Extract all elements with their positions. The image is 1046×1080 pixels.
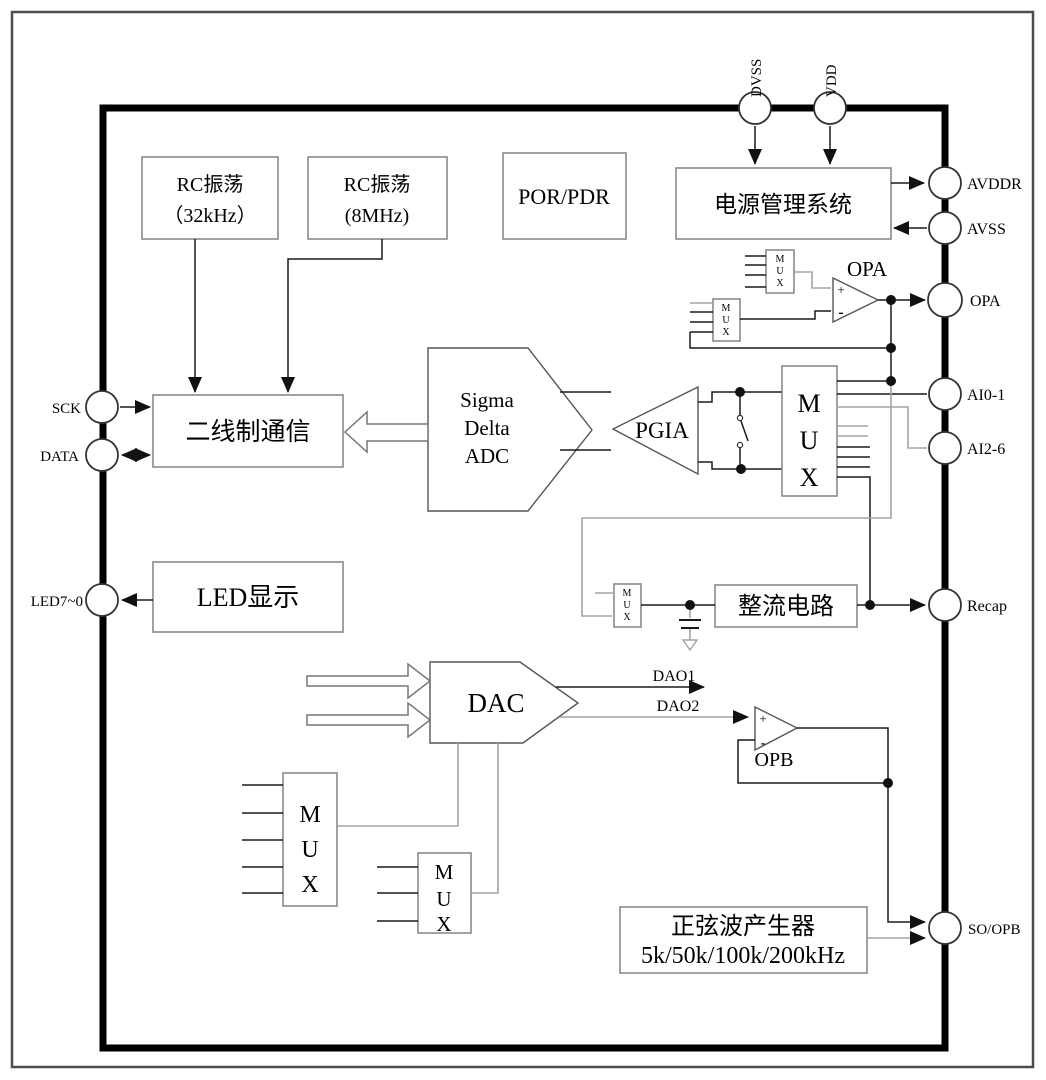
pin-label-recap: Recap	[967, 598, 1007, 615]
opa-pos-mux-block: M U X	[745, 250, 794, 293]
pin-label-vdd: VDD	[824, 64, 840, 97]
pin-circle-avss	[929, 212, 961, 244]
pin-circle-opa	[928, 283, 962, 317]
opb-amplifier: + - OPB	[755, 707, 797, 771]
mux-letter-u: U	[800, 426, 819, 455]
filter-capacitor	[679, 609, 701, 650]
opb-output-wire	[797, 728, 888, 783]
pin-label-opa: OPA	[970, 293, 1001, 310]
pin-ai0-1: AI0-1	[929, 378, 1005, 410]
mux-letter-u: U	[623, 600, 631, 611]
mux-letter-m: M	[797, 389, 820, 418]
pin-avddr: AVDDR	[929, 167, 1022, 199]
rc8-label-line2: (8MHz)	[345, 205, 409, 227]
rc8-oscillator-block: RC振荡 (8MHz)	[308, 157, 447, 239]
adc-shape	[428, 348, 592, 511]
rc32-oscillator-block: RC振荡 （32kHz）	[142, 157, 278, 239]
pgia-label: PGIA	[635, 418, 689, 443]
mux-letter-u: U	[722, 315, 730, 326]
pin-circle-led7-0	[86, 584, 118, 616]
opa-minus-sign: -	[838, 304, 843, 321]
junction-dot	[886, 295, 896, 305]
pin-label-data: DATA	[40, 449, 79, 465]
adc-label-line1: Sigma	[460, 388, 514, 412]
junction-dots	[685, 295, 896, 788]
mux-letter-m: M	[299, 802, 320, 828]
ground-symbol	[683, 640, 697, 650]
rc8-label-line1: RC振荡	[344, 173, 411, 196]
rc8-to-twowire-wire	[288, 239, 382, 392]
opa-neg-mux-inputs	[690, 312, 713, 332]
two-wire-label: 二线制通信	[185, 418, 310, 446]
junction-dot	[685, 600, 695, 610]
pin-label-avddr: AVDDR	[967, 176, 1022, 193]
capacitor-plates	[679, 620, 701, 628]
por-pdr-label: POR/PDR	[518, 184, 610, 209]
dac-aux-mux-inputs	[377, 867, 418, 921]
opa-neg-mux-block: M U X	[690, 299, 740, 341]
pin-label-sck: SCK	[52, 401, 81, 417]
pin-label-ai2-6: AI2-6	[967, 441, 1005, 458]
pin-circle-data	[86, 439, 118, 471]
opa-neg-input-wire	[740, 311, 831, 319]
sine-generator-label-line1: 正弦波产生器	[671, 913, 815, 940]
mux-letter-x: X	[800, 463, 819, 492]
mux-letter-m: M	[722, 303, 731, 314]
chip-block-diagram: RC振荡 （32kHz） RC振荡 (8MHz) POR/PDR 电源管理系统 …	[0, 0, 1046, 1080]
mux-letter-u: U	[776, 266, 784, 277]
outer-frame	[12, 12, 1033, 1067]
pin-led7-0: LED7~0	[31, 584, 118, 616]
rectifier-label: 整流电路	[738, 593, 834, 620]
pin-circle-so-opb	[929, 912, 961, 944]
input-mux-wires-dark	[837, 381, 927, 467]
opa-feedback-wrap-wire	[690, 332, 891, 348]
opa-plus-sign: +	[837, 282, 844, 297]
pin-vdd: VDD	[814, 64, 846, 124]
por-pdr-block: POR/PDR	[503, 153, 626, 239]
dac-block: DAC	[430, 662, 578, 743]
dac-input-arrow-1	[307, 664, 430, 698]
analog-input-mux-block: M U X	[782, 366, 837, 496]
dao2-label: DAO2	[657, 698, 700, 715]
junction-dot	[865, 600, 875, 610]
dao1-label: DAO1	[653, 668, 696, 685]
dac-aux-mux-block: M U X	[377, 853, 471, 936]
mux-letter-m: M	[776, 254, 785, 265]
sine-generator-label-line2: 5k/50k/100k/200kHz	[641, 943, 845, 969]
mux-letter-x: X	[623, 612, 631, 623]
dac-label: DAC	[467, 688, 524, 718]
diagram-canvas: RC振荡 （32kHz） RC振荡 (8MHz) POR/PDR 电源管理系统 …	[0, 0, 1046, 1080]
pin-avss: AVSS	[929, 212, 1006, 244]
mux-letter-x: X	[436, 912, 451, 936]
input-mux-stub-wires	[837, 426, 868, 436]
opa-amp-label: OPA	[847, 257, 888, 281]
rectifier-block: 整流电路	[715, 585, 857, 627]
pin-label-so-opb: SO/OPB	[968, 922, 1021, 938]
switch-contact-bottom	[737, 442, 742, 447]
pin-circle-sck	[86, 391, 118, 423]
adc-to-twowire-arrow	[345, 412, 428, 452]
two-wire-block: 二线制通信	[153, 395, 343, 467]
opa-amplifier: + - OPA	[833, 257, 888, 322]
pin-sck: SCK	[52, 391, 118, 423]
opb-amp-label: OPB	[755, 749, 794, 771]
opa-pos-input-wire	[794, 272, 831, 288]
mux-letter-m: M	[623, 588, 632, 599]
junction-dot	[735, 387, 745, 397]
adc-label-line2: Delta	[464, 416, 510, 440]
power-mgmt-label: 电源管理系统	[714, 192, 852, 217]
dac-input-arrow-2	[307, 703, 430, 737]
pin-so-opb: SO/OPB	[929, 912, 1021, 944]
pin-recap: Recap	[929, 589, 1007, 621]
adc-label-line3: ADC	[465, 444, 509, 468]
sine-generator-block: 正弦波产生器 5k/50k/100k/200kHz	[620, 907, 867, 973]
pgia-block: PGIA	[613, 387, 698, 474]
mux-letter-u: U	[436, 887, 451, 911]
rc32-label-line2: （32kHz）	[163, 204, 256, 227]
pin-circle-ai2-6	[929, 432, 961, 464]
analog-switch-lines	[740, 396, 748, 464]
led-display-block: LED显示	[153, 562, 343, 632]
pin-circle-avddr	[929, 167, 961, 199]
pin-dvss: DVSS	[739, 59, 771, 124]
opa-pos-mux-inputs	[745, 256, 766, 287]
node-to-rectifier-mux-wire	[582, 381, 891, 616]
pin-data: DATA	[40, 439, 118, 471]
dac-source-mux-inputs	[242, 785, 283, 893]
power-mgmt-block: 电源管理系统	[676, 168, 891, 239]
pin-label-dvss: DVSS	[749, 59, 765, 97]
rectifier-mux-block: M U X	[595, 584, 641, 627]
pin-ai2-6: AI2-6	[929, 432, 1005, 464]
opb-to-pin-wire	[888, 783, 925, 922]
mux-letter-x: X	[776, 278, 784, 289]
led-display-label: LED显示	[197, 583, 300, 612]
pin-label-led7-0: LED7~0	[31, 594, 83, 610]
junction-dot	[886, 376, 896, 386]
pin-opa: OPA	[928, 283, 1001, 317]
sigma-delta-adc-block: Sigma Delta ADC	[428, 348, 592, 511]
mux-letter-m: M	[435, 860, 454, 884]
pin-circle-recap	[929, 589, 961, 621]
mux-letter-x: X	[722, 327, 730, 338]
mux-letter-x: X	[301, 872, 318, 898]
pin-circle-ai0-1	[929, 378, 961, 410]
rc32-label-line1: RC振荡	[177, 173, 244, 196]
pin-label-ai0-1: AI0-1	[967, 387, 1005, 404]
junction-dot	[886, 343, 896, 353]
switch-contact-top	[737, 415, 742, 420]
pin-label-avss: AVSS	[967, 221, 1006, 238]
opb-plus-sign: +	[759, 711, 766, 726]
analog-switch	[737, 396, 748, 464]
ai2-6-wire	[837, 407, 927, 448]
mux-letter-u: U	[301, 837, 318, 863]
junction-dot	[736, 464, 746, 474]
junction-dot	[883, 778, 893, 788]
dac-source-mux-block: M U X	[242, 773, 337, 906]
